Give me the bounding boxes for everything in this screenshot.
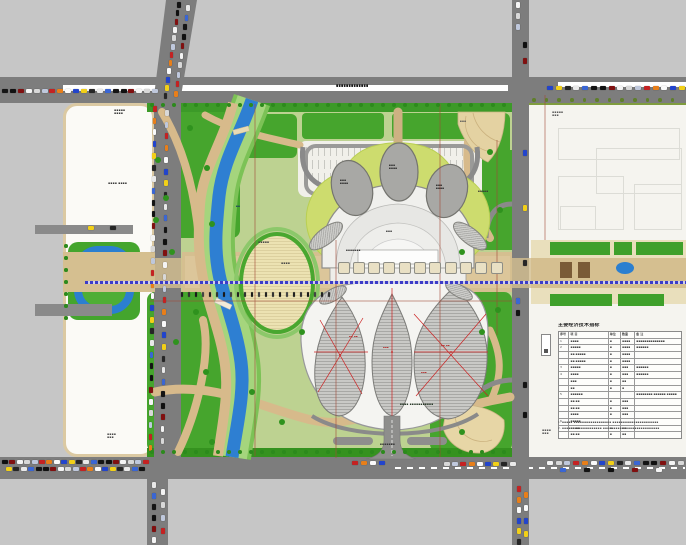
- car: [2, 460, 8, 464]
- annotation-label: ▪▪▪▪▪▪▪: [380, 443, 424, 446]
- legend-cell: ▪▪·▪▪: [568, 406, 607, 412]
- legend-cell: [634, 359, 681, 365]
- tree-icon: [194, 103, 198, 107]
- tree-icon: [403, 450, 407, 454]
- car: [80, 467, 86, 471]
- car: [167, 68, 171, 74]
- car: [161, 489, 165, 495]
- car: [485, 462, 491, 466]
- tree-icon: [414, 103, 418, 107]
- legend-cell: [559, 352, 568, 358]
- car: [152, 515, 156, 521]
- car: [516, 310, 520, 316]
- tree-icon: [491, 103, 495, 107]
- legend-row: ▪▪·▪▪▪▪▪: [559, 431, 681, 438]
- car: [139, 467, 145, 471]
- tree-icon: [392, 103, 396, 107]
- car: [171, 44, 175, 50]
- legend-row: 2▪▪▪▪▪▪▪▪▪▪▪▪▪▪▪▪: [559, 344, 681, 351]
- car: [163, 262, 167, 268]
- tree-icon: [459, 249, 465, 255]
- car: [163, 297, 167, 303]
- car: [653, 86, 659, 90]
- car: [584, 468, 590, 472]
- car: [172, 35, 176, 41]
- legend-cell: ▪: [608, 372, 620, 378]
- car: [314, 292, 316, 297]
- car: [117, 467, 123, 471]
- car: [591, 461, 597, 465]
- car: [65, 89, 71, 93]
- legend-cell: ▪: [608, 406, 620, 412]
- car: [89, 89, 95, 93]
- tree-icon: [469, 103, 473, 107]
- car: [216, 292, 218, 297]
- legend-row: 5▪▪▪▪▪▪▪▪▪▪▪▪▪▪ ▪▪▪▪▪▪ ▪▪▪▪▪: [559, 391, 681, 398]
- tree-icon: [216, 450, 220, 454]
- car: [230, 292, 232, 297]
- legend-cell: ▪: [608, 399, 620, 405]
- car: [286, 292, 288, 297]
- car: [181, 292, 183, 297]
- car: [452, 462, 458, 466]
- tree-icon: [238, 450, 242, 454]
- car: [152, 493, 156, 499]
- tree-icon: [161, 103, 165, 107]
- legend-header-cell: 项 目: [568, 332, 607, 338]
- legend-cell: 1: [559, 339, 568, 345]
- tree-icon: [203, 369, 209, 375]
- car: [43, 467, 49, 471]
- tree-icon: [173, 339, 179, 345]
- car: [153, 106, 157, 112]
- car: [17, 460, 23, 464]
- tree-icon: [436, 103, 440, 107]
- tree-icon: [497, 207, 503, 213]
- legend-cell: ▪▪▪▪: [568, 412, 607, 418]
- car: [49, 89, 55, 93]
- car: [523, 58, 527, 64]
- annotation-label: ▪▪▪▪ ▪▪▪▪: [108, 182, 142, 185]
- car: [10, 89, 16, 93]
- car: [644, 86, 650, 90]
- legend-cell: ▪▪·▪▪: [568, 399, 607, 405]
- car: [178, 62, 182, 68]
- car: [166, 77, 170, 83]
- annotation-label: ▪▪▪▪▪ ▪▪▪: [552, 111, 576, 118]
- tree-icon: [620, 98, 624, 102]
- car: [152, 165, 156, 171]
- tree-icon: [282, 103, 286, 107]
- car: [163, 250, 167, 256]
- legend-monument-dot: [544, 349, 548, 353]
- car: [300, 292, 302, 297]
- legend-cell: ▪▪·▪▪▪▪▪: [568, 359, 607, 365]
- legend-cell: ▪▪▪: [620, 406, 634, 412]
- tree-icon: [359, 450, 363, 454]
- car: [163, 286, 167, 292]
- legend-cell: ▪▪▪: [568, 379, 607, 385]
- car: [152, 223, 156, 229]
- car: [582, 461, 588, 465]
- car: [678, 461, 684, 465]
- tree-icon: [249, 103, 253, 107]
- tree-icon: [502, 103, 506, 107]
- legend-cell: 4: [559, 372, 568, 378]
- legend-cell: [634, 386, 681, 392]
- tree-icon: [279, 419, 285, 425]
- car: [600, 86, 606, 90]
- car: [164, 157, 168, 163]
- legend-cell: [559, 359, 568, 365]
- car: [102, 467, 108, 471]
- car: [161, 502, 165, 508]
- legend-row: ▪▪▪▪▪▪▪▪: [559, 411, 681, 418]
- car: [162, 379, 166, 385]
- tree-icon: [64, 292, 68, 296]
- car: [152, 537, 156, 543]
- car: [183, 24, 187, 30]
- car: [121, 89, 127, 93]
- site-plan-canvas: ▪▪▪▪▪ ▪▪▪▪▪▪▪▪ ▪▪▪▪▪▪▪▪▪▪▪▪▪▪▪▪▪▪▪▪▪▪▪▪▪…: [0, 0, 686, 545]
- car: [609, 86, 615, 90]
- car: [469, 462, 475, 466]
- plaza-planter: [383, 262, 395, 274]
- tree-icon: [326, 450, 330, 454]
- car: [165, 133, 169, 139]
- car: [152, 482, 156, 488]
- car: [175, 19, 179, 25]
- legend-cell: [559, 399, 568, 405]
- car: [136, 89, 142, 93]
- car: [95, 467, 101, 471]
- legend-cell: ▪▪▪▪▪: [568, 345, 607, 351]
- car: [679, 86, 685, 90]
- car: [176, 81, 180, 87]
- car: [517, 539, 521, 545]
- tree-icon: [271, 450, 275, 454]
- tree-icon: [671, 98, 675, 102]
- car: [361, 461, 367, 465]
- car: [153, 141, 157, 147]
- tree-icon: [480, 450, 484, 454]
- car: [124, 467, 130, 471]
- tree-icon: [204, 165, 210, 171]
- tree-icon: [150, 450, 154, 454]
- car: [152, 526, 156, 532]
- car: [161, 414, 165, 420]
- car: [516, 13, 520, 19]
- car: [582, 86, 588, 90]
- legend-cell: ▪▪: [568, 386, 607, 392]
- legend-cell: ▪▪▪: [620, 365, 634, 371]
- car: [153, 129, 157, 135]
- car: [493, 462, 499, 466]
- car: [632, 468, 638, 472]
- annotation-label: ▪▪▪: [383, 347, 401, 350]
- car: [251, 292, 253, 297]
- legend-header-cell: 数量: [620, 332, 634, 338]
- car: [608, 468, 614, 472]
- legend-cell: [620, 392, 634, 398]
- car: [149, 410, 153, 416]
- tree-icon: [491, 450, 495, 454]
- tree-icon: [260, 450, 264, 454]
- car: [517, 486, 521, 492]
- tree-icon: [570, 98, 574, 102]
- car: [110, 226, 116, 230]
- axis-dashed-line: [85, 281, 686, 284]
- car: [150, 328, 154, 334]
- car: [162, 344, 166, 350]
- car: [128, 89, 134, 93]
- car: [65, 467, 71, 471]
- legend-cell: ▪▪▪: [620, 372, 634, 378]
- legend-row: ▪▪·▪▪▪▪▪▪: [559, 405, 681, 412]
- car: [165, 122, 169, 128]
- car: [517, 497, 521, 503]
- annotation-label: ▪▪▪▪▪: [258, 241, 288, 244]
- tree-icon: [337, 103, 341, 107]
- car: [87, 467, 93, 471]
- car: [660, 461, 666, 465]
- car: [547, 86, 553, 90]
- car: [163, 239, 167, 245]
- car: [152, 200, 156, 206]
- car: [91, 460, 97, 464]
- annotation-label: ▪▪▪▪: [281, 262, 307, 265]
- tree-icon: [216, 103, 220, 107]
- legend-note-1: 1. ▪▪▪▪▪ ▪▪▪▪▪▪▪▪▪▪▪▪▪▪▪▪▪▪ ▪▪▪▪▪▪▪▪▪▪▪▪…: [558, 421, 684, 424]
- car: [556, 461, 562, 465]
- car: [149, 387, 153, 393]
- plaza-planter: [353, 262, 365, 274]
- car: [164, 180, 168, 186]
- annotation-label: ▪▪▪▪▪: [478, 190, 506, 193]
- car: [28, 467, 34, 471]
- car: [34, 89, 40, 93]
- car: [617, 461, 623, 465]
- car: [151, 235, 155, 241]
- car: [161, 528, 165, 534]
- tree-icon: [155, 157, 161, 163]
- car: [165, 145, 169, 151]
- tree-icon: [260, 103, 264, 107]
- car: [523, 150, 527, 156]
- legend-row: ▪▪▪▪: [559, 385, 681, 392]
- tree-icon: [458, 450, 462, 454]
- legend-header-cell: 序号: [559, 332, 568, 338]
- legend-cell: 5: [559, 392, 568, 398]
- legend-cell: [559, 412, 568, 418]
- annotation-label: ▪▪▪▪▪ ▪▪▪▪: [114, 109, 142, 116]
- car: [54, 460, 60, 464]
- car: [173, 27, 177, 33]
- tree-icon: [227, 103, 231, 107]
- tree-icon: [447, 103, 451, 107]
- car: [113, 460, 119, 464]
- car: [135, 460, 141, 464]
- car: [69, 460, 75, 464]
- legend-cell: ▪▪·▪▪: [568, 432, 607, 438]
- tree-icon: [304, 450, 308, 454]
- car: [564, 461, 570, 465]
- tree-icon: [64, 244, 68, 248]
- tree-icon: [447, 450, 451, 454]
- plaza-planter: [399, 262, 411, 274]
- tree-icon: [583, 98, 587, 102]
- car: [73, 467, 79, 471]
- annotation-label: ▪▪▪▪ ▪▪▪: [107, 433, 133, 440]
- car: [272, 292, 274, 297]
- tree-icon: [370, 450, 374, 454]
- car: [195, 292, 197, 297]
- tree-icon: [183, 103, 187, 107]
- car: [152, 176, 156, 182]
- car: [556, 86, 562, 90]
- car: [6, 467, 12, 471]
- car: [188, 292, 190, 297]
- tree-icon: [249, 450, 253, 454]
- car: [143, 460, 149, 464]
- legend-cell: [559, 386, 568, 392]
- car: [523, 382, 527, 388]
- car: [24, 460, 30, 464]
- car: [523, 412, 527, 418]
- plaza-planter: [368, 262, 380, 274]
- legend-row: 3▪▪▪▪▪▪▪▪▪▪▪▪▪▪▪: [559, 364, 681, 371]
- car: [149, 422, 153, 428]
- tree-icon: [502, 450, 506, 454]
- car: [50, 467, 56, 471]
- tree-icon: [209, 439, 215, 445]
- tree-icon: [487, 149, 493, 155]
- tree-icon: [557, 98, 561, 102]
- legend-row: ▪▪·▪▪▪▪▪▪: [559, 398, 681, 405]
- car: [113, 89, 119, 93]
- road-name-label: ▪▪▪▪▪▪▪▪▪▪▪▪▪: [336, 85, 428, 89]
- car: [164, 169, 168, 175]
- car: [152, 504, 156, 510]
- car: [661, 86, 667, 90]
- legend-row: ▪▪·▪▪▪▪▪▪▪▪▪▪: [559, 351, 681, 358]
- car: [151, 293, 155, 299]
- car: [150, 340, 154, 346]
- tree-icon: [348, 103, 352, 107]
- plaza-planter: [445, 262, 457, 274]
- car: [81, 89, 87, 93]
- legend-cell: ▪▪▪▪▪▪: [634, 372, 681, 378]
- legend-cell: ▪▪▪▪▪: [568, 365, 607, 371]
- car: [565, 86, 571, 90]
- car: [153, 118, 157, 124]
- car: [524, 492, 528, 498]
- car: [152, 188, 156, 194]
- car: [223, 292, 225, 297]
- tree-icon: [194, 450, 198, 454]
- legend-cell: [634, 406, 681, 412]
- annotation-label: ▪▪▪ ▪▪▪▪: [389, 164, 411, 170]
- legend-cell: ▪▪▪▪: [568, 339, 607, 345]
- car: [185, 15, 189, 21]
- car: [73, 89, 79, 93]
- legend-header-cell: 单位: [608, 332, 620, 338]
- tree-icon: [392, 450, 396, 454]
- car: [162, 309, 166, 315]
- car: [626, 86, 632, 90]
- annotation-label: ▪▪▪: [386, 230, 410, 233]
- legend-cell: ▪▪·▪▪▪▪▪: [568, 352, 607, 358]
- legend-cell: ▪: [608, 345, 620, 351]
- legend-cell: [634, 399, 681, 405]
- tree-icon: [293, 103, 297, 107]
- legend-header-cell: 备 注: [634, 332, 681, 338]
- tree-icon: [337, 450, 341, 454]
- tree-icon: [315, 103, 319, 107]
- car: [510, 462, 516, 466]
- tree-icon: [348, 450, 352, 454]
- car: [151, 246, 155, 252]
- plaza-planter: [475, 262, 487, 274]
- car: [321, 292, 323, 297]
- legend-cell: [634, 432, 681, 438]
- legend-cell: ▪▪▪▪: [568, 372, 607, 378]
- car: [162, 356, 166, 362]
- car: [165, 110, 169, 116]
- tree-icon: [436, 450, 440, 454]
- tree-icon: [64, 268, 68, 272]
- tree-icon: [187, 125, 193, 131]
- car: [547, 461, 553, 465]
- tree-icon: [646, 98, 650, 102]
- legend-cell: ▪▪: [620, 432, 634, 438]
- car: [523, 205, 527, 211]
- car: [150, 375, 154, 381]
- car: [57, 89, 63, 93]
- legend-cell: 3: [559, 365, 568, 371]
- annotation-label: ▪▪: [236, 205, 250, 208]
- car: [76, 460, 82, 464]
- car: [186, 5, 190, 11]
- car: [165, 85, 169, 91]
- car: [162, 321, 166, 327]
- annotation-label: ▪▪▪▪▪▪▪: [346, 249, 392, 252]
- car: [180, 53, 184, 59]
- tree-icon: [595, 98, 599, 102]
- legend-cell: ▪: [608, 352, 620, 358]
- car: [161, 426, 165, 432]
- tree-icon: [293, 450, 297, 454]
- legend-row: 4▪▪▪▪▪▪▪▪▪▪▪▪▪▪: [559, 371, 681, 378]
- car: [161, 391, 165, 397]
- car: [162, 367, 166, 373]
- legend-cell: [559, 379, 568, 385]
- tree-icon: [64, 256, 68, 260]
- car: [617, 86, 623, 90]
- tree-icon: [425, 103, 429, 107]
- car: [169, 60, 173, 66]
- car: [517, 507, 521, 513]
- tree-icon: [495, 307, 501, 313]
- car: [352, 461, 358, 465]
- legend-cell: ▪▪▪▪: [620, 352, 634, 358]
- tree-icon: [209, 221, 215, 227]
- car: [182, 34, 186, 40]
- tree-icon: [469, 450, 473, 454]
- annotation-label: ▪▪ ▪▪: [441, 345, 461, 348]
- car: [150, 352, 154, 358]
- tree-icon: [532, 98, 536, 102]
